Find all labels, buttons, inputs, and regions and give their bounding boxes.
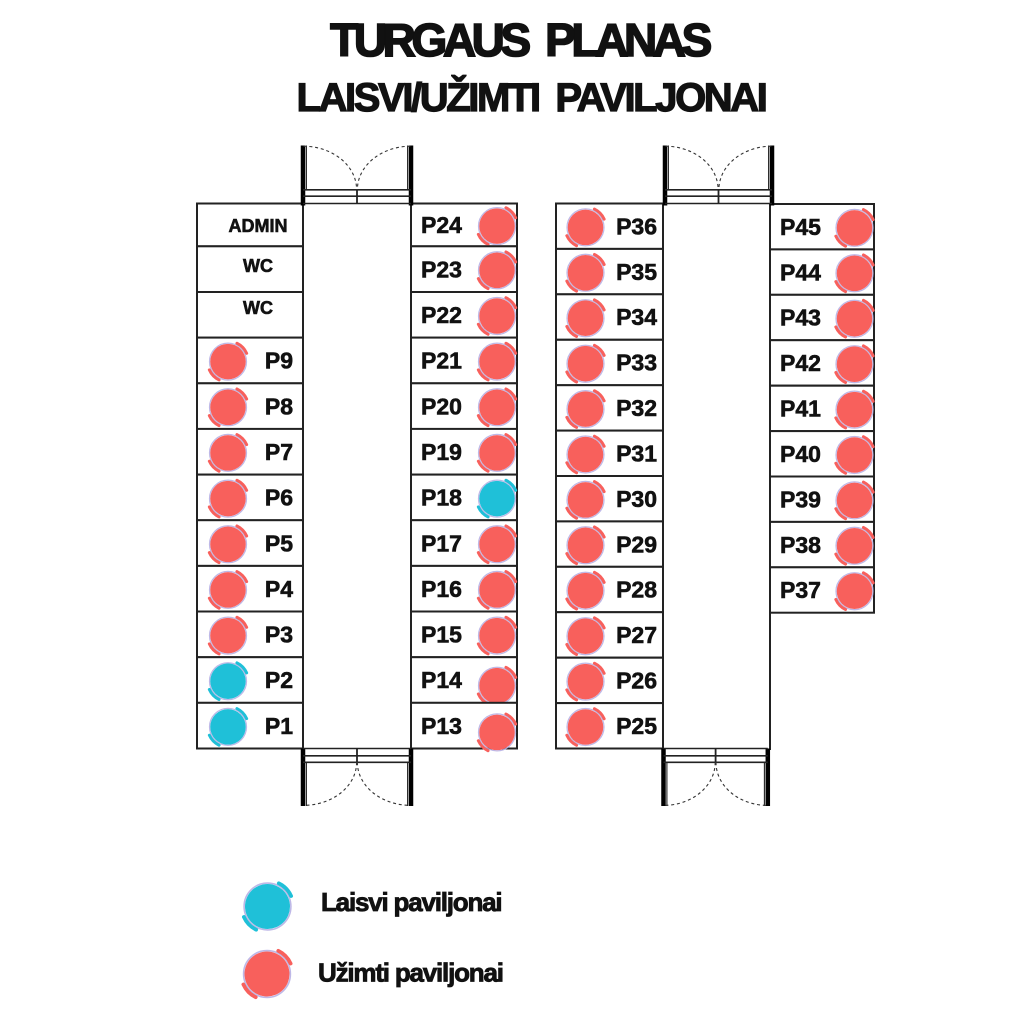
svg-text:P37: P37 [780, 577, 821, 603]
svg-text:P45: P45 [780, 214, 821, 240]
svg-text:P28: P28 [616, 577, 657, 603]
svg-text:P14: P14 [421, 667, 462, 693]
svg-text:P1: P1 [265, 713, 293, 739]
svg-text:P40: P40 [780, 441, 821, 467]
svg-text:P23: P23 [421, 256, 462, 282]
svg-text:Laisvi paviljonai: Laisvi paviljonai [321, 887, 501, 917]
svg-text:P31: P31 [616, 441, 657, 467]
svg-text:P2: P2 [265, 667, 293, 693]
svg-text:P7: P7 [265, 439, 293, 465]
svg-text:P36: P36 [616, 213, 657, 239]
svg-text:P35: P35 [616, 259, 657, 285]
svg-text:P6: P6 [265, 485, 293, 511]
svg-text:P21: P21 [421, 348, 462, 374]
svg-text:P32: P32 [616, 395, 657, 421]
svg-text:P42: P42 [780, 350, 821, 376]
svg-text:ADMIN: ADMIN [229, 216, 288, 236]
svg-text:TURGAUS PLANAS: TURGAUS PLANAS [330, 14, 710, 66]
svg-text:P38: P38 [780, 532, 821, 558]
svg-text:P44: P44 [780, 259, 821, 285]
svg-text:P17: P17 [421, 530, 462, 556]
svg-text:LAISVI/UŽIMTI PAVILJONAI: LAISVI/UŽIMTI PAVILJONAI [297, 74, 766, 120]
svg-text:P3: P3 [265, 622, 293, 648]
svg-text:P5: P5 [265, 530, 293, 556]
svg-text:P24: P24 [421, 212, 462, 238]
svg-text:P25: P25 [616, 713, 657, 739]
svg-text:WC: WC [243, 256, 273, 276]
svg-text:P9: P9 [265, 348, 293, 374]
svg-text:P20: P20 [421, 393, 462, 419]
svg-text:P26: P26 [616, 668, 657, 694]
svg-text:P22: P22 [421, 302, 462, 328]
svg-text:P15: P15 [421, 622, 462, 648]
svg-text:P30: P30 [616, 486, 657, 512]
svg-text:P39: P39 [780, 486, 821, 512]
svg-text:P19: P19 [421, 439, 462, 465]
svg-text:P41: P41 [780, 396, 821, 422]
svg-text:P8: P8 [265, 393, 293, 419]
svg-text:P29: P29 [616, 531, 657, 557]
svg-text:P27: P27 [616, 622, 657, 648]
svg-text:P43: P43 [780, 305, 821, 331]
svg-text:WC: WC [243, 298, 273, 318]
svg-text:P13: P13 [421, 713, 462, 739]
svg-text:P16: P16 [421, 576, 462, 602]
svg-text:P34: P34 [616, 304, 657, 330]
svg-text:Užimti paviljonai: Užimti paviljonai [318, 958, 503, 988]
svg-text:P33: P33 [616, 350, 657, 376]
svg-text:P4: P4 [265, 576, 293, 602]
svg-text:P18: P18 [421, 485, 462, 511]
